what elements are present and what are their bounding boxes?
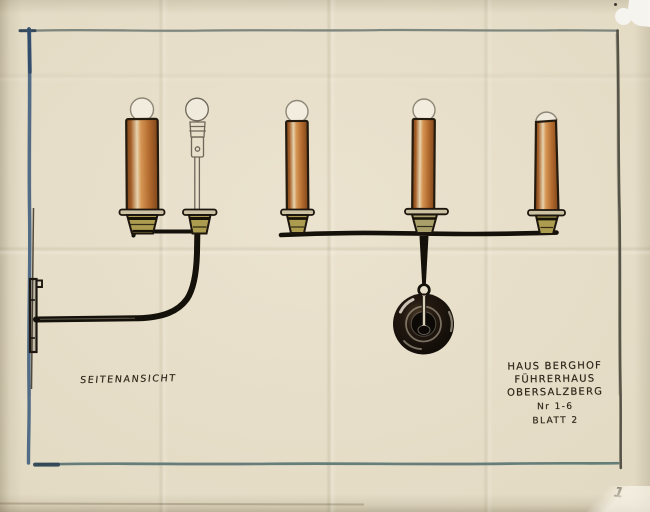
border-bottom: [36, 463, 618, 464]
candle-with-sleeve-side: [120, 98, 165, 234]
title-project: HAUS BERGHOF: [492, 359, 618, 374]
candle-sleeve: [126, 119, 158, 211]
title-sheet: BLATT 2: [492, 414, 618, 428]
stem-knob: [418, 325, 430, 334]
canopy-disc: [393, 294, 454, 355]
title-block: HAUS BERGHOF FÜHRERHAUS OBERSALZBERG Nr …: [492, 359, 619, 428]
wall-sconce-arm: [36, 235, 197, 320]
candle-center: [405, 99, 448, 233]
wall-plate: [30, 279, 37, 352]
title-number: Nr 1-6: [492, 400, 618, 414]
light-bulb-icon: [186, 98, 209, 121]
candle-left: [281, 101, 314, 234]
candle-sleeve: [535, 121, 559, 212]
torn-corner-bite: [615, 8, 632, 25]
candle-right: [528, 112, 565, 234]
candle-sleeve: [412, 119, 435, 210]
side-view-label: SEITENANSICHT: [79, 373, 177, 386]
candle-sleeve: [286, 121, 308, 210]
center-stem: [420, 236, 429, 285]
socket-thread: [190, 122, 205, 137]
border-left: [28, 29, 29, 463]
scanned-lamp-drawing: SEITENANSICHT HAUS BERGHOF FÜHRERHAUS OB…: [0, 0, 650, 512]
light-bulb-icon: [131, 98, 154, 121]
switch-dot: [195, 147, 199, 151]
paper-speck: [614, 3, 617, 6]
bare-bulb-holder-side: [186, 98, 209, 209]
title-location: OBERSALZBERG: [492, 385, 618, 400]
socket-rim: [405, 209, 448, 215]
drawing-canvas: [0, 0, 650, 512]
side-view-drawing: [30, 98, 217, 389]
holder-stem: [195, 157, 200, 209]
light-bulb-icon: [413, 99, 435, 121]
light-bulb-icon: [286, 101, 308, 123]
front-view-drawing: [281, 99, 565, 355]
paper-corner-highlight: [555, 486, 650, 512]
